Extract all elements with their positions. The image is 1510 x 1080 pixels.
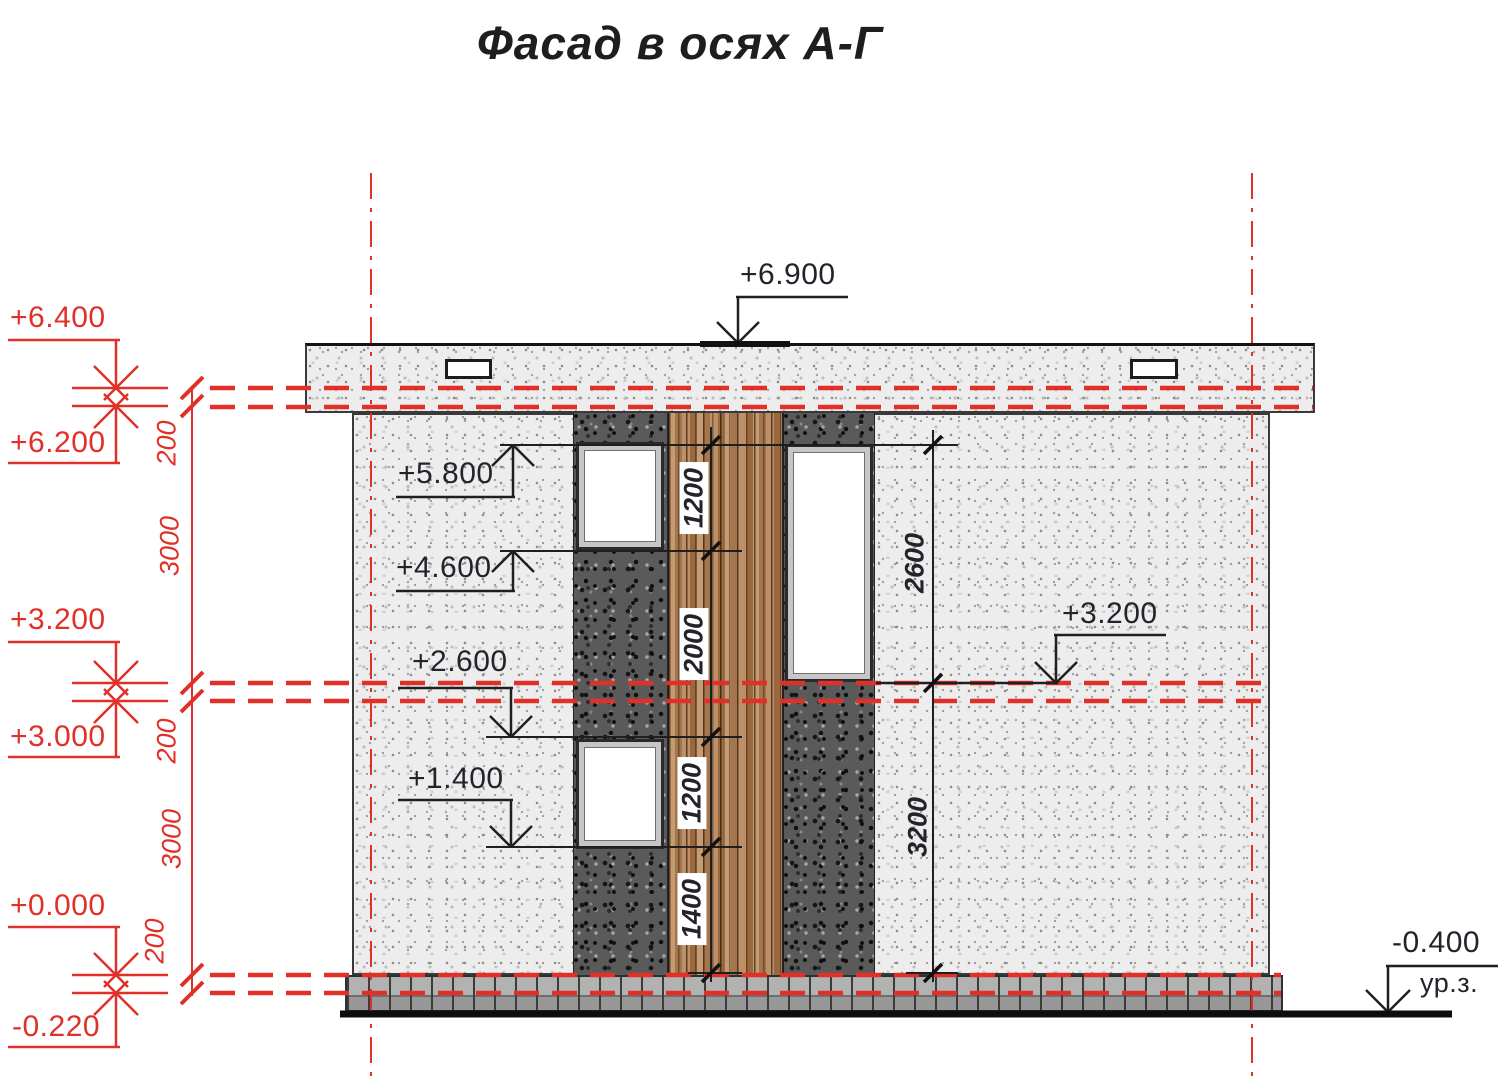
dim-center-2000: 2000 <box>680 608 709 680</box>
elevation-label-6900: +6.900 <box>740 260 836 290</box>
dim-left-200-c: 200 <box>142 918 169 963</box>
elevation-label-3200-right: +3.200 <box>1062 599 1158 629</box>
elevation-label-1400: +1.400 <box>408 764 504 794</box>
elevation-label-4600: +4.600 <box>396 553 492 583</box>
dim-right-3200: 3200 <box>905 797 932 857</box>
elevation-label-6200: +6.200 <box>10 428 106 458</box>
elevation-label-minus0400: -0.400 <box>1392 928 1480 958</box>
dim-left-3000-b: 3000 <box>159 809 186 869</box>
elevation-label-0000: +0.000 <box>10 891 106 921</box>
elevation-label-5800: +5.800 <box>398 459 494 489</box>
dim-right-2600: 2600 <box>902 533 929 593</box>
dim-left-200-a: 200 <box>154 420 181 465</box>
elevation-label-minus0220: -0.220 <box>12 1012 100 1042</box>
elevation-label-2600: +2.600 <box>412 647 508 677</box>
ground-level-label: ур.з. <box>1420 970 1478 997</box>
elevation-label-3000: +3.000 <box>10 722 106 752</box>
dim-left-3000-a: 3000 <box>157 516 184 576</box>
labels: +6.400 +6.200 +3.200 +3.000 +0.000 -0.22… <box>0 0 1510 1080</box>
elevation-label-3200-left: +3.200 <box>10 605 106 635</box>
dim-center-1200-a: 1200 <box>680 462 709 534</box>
dim-left-200-b: 200 <box>154 718 181 763</box>
elevation-label-6400: +6.400 <box>10 303 106 333</box>
facade-drawing: Фасад в осях А-Г <box>0 0 1510 1080</box>
dim-center-1200-b: 1200 <box>678 757 707 829</box>
dim-center-1400: 1400 <box>678 873 707 945</box>
